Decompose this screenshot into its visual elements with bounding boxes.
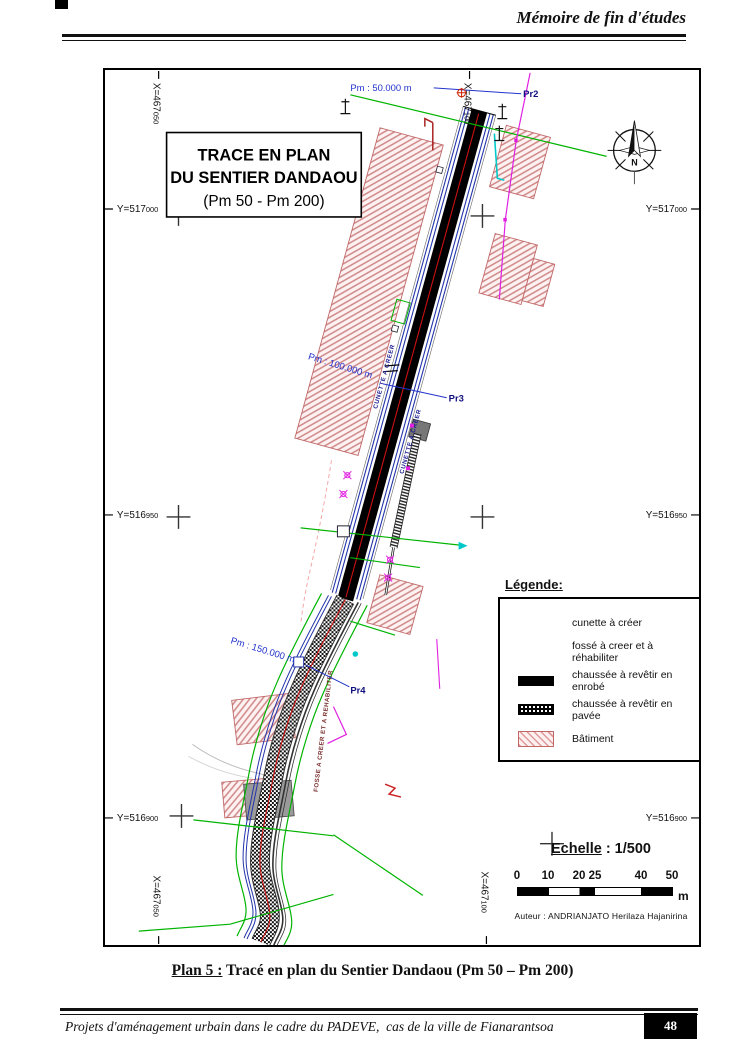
axis-label-y2-right: Y=516950 [646, 510, 687, 521]
survey-box [337, 526, 349, 537]
scale-bar-strip [517, 887, 673, 896]
scale-tick: 20 [573, 870, 586, 882]
legend-item-label: fossé à creer et à réhabiliter [572, 640, 699, 664]
site-plan-drawing: CUNETTE A CREER CUNETTE A CREER FOSSE A … [105, 70, 699, 945]
page-header-title: Mémoire de fin d'études [0, 8, 686, 28]
red-mark [385, 784, 401, 797]
axis-label-y2-left: Y=516950 [117, 510, 158, 521]
legend-item: chaussée à revêtir en pavée [500, 695, 699, 724]
legend-item-label: Bâtiment [572, 733, 613, 745]
scale-bar: 0 10 20 25 40 50 m [517, 887, 673, 896]
legend-swatch-pavee-icon [518, 704, 554, 715]
footer-text: Projets d'aménagement urbain dans le cad… [65, 1019, 554, 1035]
legend-item: fossé à creer et à réhabiliter [500, 637, 699, 666]
legend-item: chaussée à revêtir en enrobé [500, 666, 699, 695]
scale-word: Echelle [551, 841, 602, 857]
legend-swatch-batiment-icon [518, 731, 554, 747]
plan-caption: Plan 5 : Tracé en plan du Sentier Dandao… [0, 962, 745, 980]
axis-label-y3-left: Y=516900 [117, 813, 158, 824]
building [367, 575, 423, 635]
footer-rule [60, 1008, 698, 1015]
scale-tick: 10 [542, 870, 555, 882]
pm150-label: Pm : 150.000 m [230, 634, 297, 664]
compass-n-label: N [631, 157, 637, 167]
survey-box [294, 657, 304, 667]
plan-caption-text: Tracé en plan du Sentier Dandaou (Pm 50 … [222, 962, 573, 979]
legend-item-label: cunette à créer [572, 617, 642, 629]
scale-block: Echelle : 1/500 0 10 20 25 40 50 m Auteu… [505, 841, 697, 921]
legend-item: cunette à créer [500, 608, 699, 637]
scale-tick: 50 [666, 870, 679, 882]
legend-item-label: chaussée à revêtir en enrobé [572, 669, 699, 693]
cyan-dot [353, 651, 359, 657]
title-box: TRACE EN PLAN DU SENTIER DANDAOU (Pm 50 … [167, 133, 362, 217]
old-path-trace [188, 756, 252, 778]
axis-label-x-bottom-right: X=467100 [478, 872, 489, 913]
plan-title-line3: (Pm 50 - Pm 200) [203, 193, 324, 210]
legend-box: cunette à créer fossé à creer et à réhab… [498, 597, 701, 762]
scale-tick: 25 [589, 870, 602, 882]
building [490, 125, 551, 198]
scale-unit: m [678, 889, 689, 903]
roadside-marker [391, 325, 398, 332]
plan-title-line1: TRACE EN PLAN [198, 146, 331, 164]
legend-item: Bâtiment [500, 724, 699, 753]
pr2-label: Pr2 [523, 88, 538, 99]
pm50-label: Pm : 50.000 m [350, 82, 411, 93]
legend: Légende: cunette à créer fossé à creer e… [498, 577, 701, 762]
axis-label-y1-left: Y=517000 [117, 204, 158, 215]
author-line: Auteur : ANDRIANJATO Herilaza Hajanirina [505, 911, 697, 921]
legend-item-label: chaussée à revêtir en pavée [572, 698, 699, 722]
scale-ratio: : 1/500 [606, 841, 651, 857]
pr3-label: Pr3 [449, 393, 464, 404]
axis-label-y3-right: Y=516900 [646, 813, 687, 824]
scale-title: Echelle : 1/500 [505, 841, 697, 857]
compass-icon: N [608, 121, 662, 185]
legend-swatch-enrobe-icon [518, 676, 554, 686]
old-path-trace [301, 460, 332, 624]
axis-label-y1-right: Y=517000 [646, 204, 687, 215]
header-rule [62, 34, 686, 41]
roadside-marker [436, 166, 443, 173]
cyan-arrow [459, 542, 468, 550]
page-number-badge: 48 [644, 1013, 697, 1039]
scale-tick: 0 [514, 870, 520, 882]
axis-label-x-top-left: X=467050 [151, 83, 162, 124]
legend-title: Légende: [505, 577, 701, 592]
axis-label-x-bottom-left: X=467050 [151, 876, 162, 917]
plan-caption-label: Plan 5 : [172, 962, 223, 979]
pr4-label: Pr4 [350, 685, 366, 696]
scale-tick: 40 [635, 870, 648, 882]
plan-frame: CUNETTE A CREER CUNETTE A CREER FOSSE A … [103, 68, 701, 947]
plan-title-line2: DU SENTIER DANDAOU [170, 169, 357, 187]
